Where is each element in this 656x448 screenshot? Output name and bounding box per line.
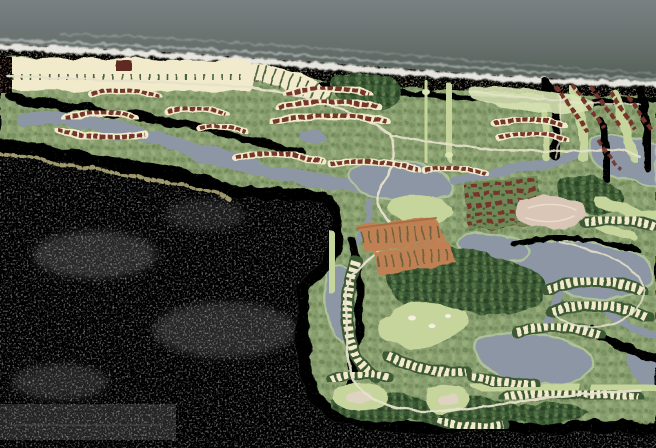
bunker: [445, 314, 451, 318]
putting-green: [422, 89, 430, 95]
scrub-light-patch: [153, 302, 297, 358]
sand-waste-area: [438, 396, 458, 405]
master-plan-map: [0, 0, 656, 448]
beachfront-building: [116, 60, 132, 71]
putting-green: [445, 152, 453, 158]
scale-bar-panel: [0, 404, 176, 440]
sand-waste-area: [348, 393, 372, 403]
fairway-strip: [447, 88, 451, 160]
bunker: [429, 324, 436, 328]
bunker: [408, 316, 416, 321]
fairway-strip: [425, 84, 427, 158]
feature-layer: [0, 0, 656, 448]
fairway-corridor: [330, 238, 334, 286]
scrub-light-patch: [33, 231, 157, 279]
scrub-light-patch: [12, 364, 108, 400]
master-plan-screenshot: [0, 0, 656, 448]
scrub-light-patch: [165, 199, 245, 231]
